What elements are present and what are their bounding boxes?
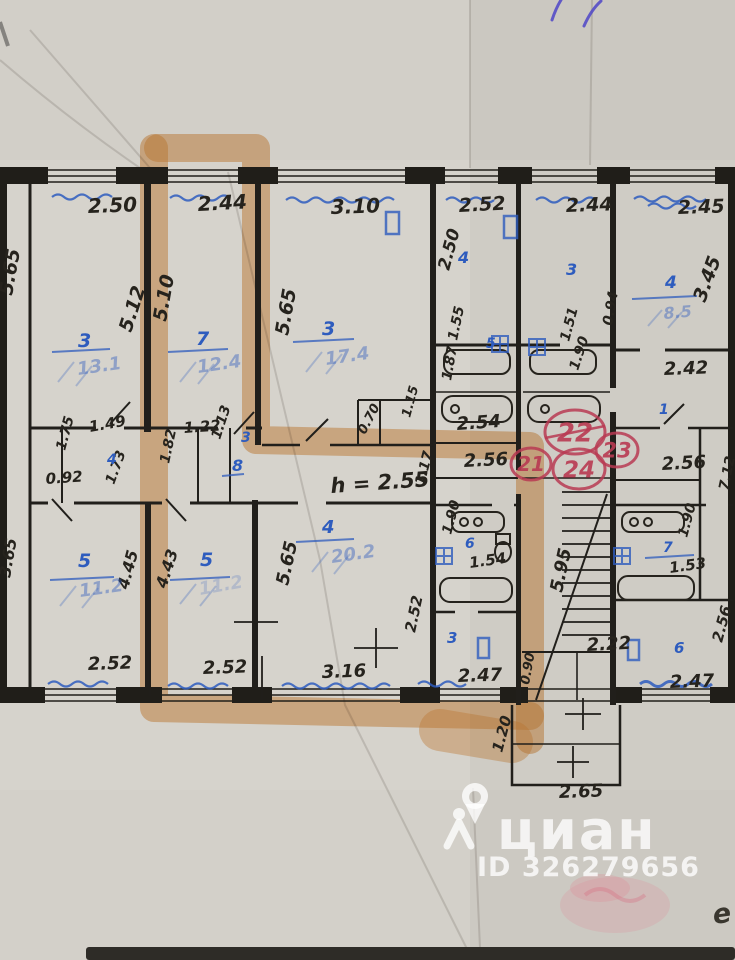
room-label-3: 3: [322, 318, 335, 340]
room-label-4: 4: [106, 452, 117, 468]
dimension-label-2.54: 2.54: [456, 411, 502, 435]
room-label-3: 3: [447, 629, 457, 647]
dimension-label-2.44: 2.44: [565, 193, 613, 217]
scanned-floor-plan-page: 2.502.443.102.522.442.455.655.125.105.65…: [0, 0, 735, 960]
dimension-label-2.42: 2.42: [663, 357, 708, 380]
room-label-6: 6: [674, 639, 684, 657]
svg-text:23: 23: [602, 439, 631, 463]
room-label-8.5: 8.5: [663, 302, 693, 323]
dimension-label-2.56: 2.56: [661, 452, 706, 475]
dimension-label-0.92: 0.92: [45, 467, 83, 488]
room-label-8: 8: [232, 456, 243, 475]
floor-plan-svg: 2.502.443.102.522.442.455.655.125.105.65…: [0, 0, 735, 960]
dimension-label-2.56: 2.56: [463, 449, 508, 472]
dimension-label-3.10: 3.10: [330, 193, 380, 219]
dimension-label-2.50: 2.50: [87, 192, 137, 218]
scan-edge-bar: [86, 947, 735, 960]
watermark-id: ID 326279656: [477, 852, 700, 883]
room-label-3: 3: [241, 430, 251, 446]
room-label-5: 5: [200, 549, 213, 571]
room-label-3: 3: [78, 330, 91, 352]
dimension-label-2.44: 2.44: [197, 189, 248, 216]
dimension-label-2.22: 2.22: [586, 633, 631, 656]
dimension-label-2.47: 2.47: [669, 670, 715, 693]
dimension-label-2.52: 2.52: [202, 656, 247, 679]
svg-text:24: 24: [563, 457, 595, 483]
room-label-7: 7: [663, 540, 673, 556]
room-label-5: 5: [486, 336, 496, 352]
dimension-label-2.52: 2.52: [87, 652, 132, 675]
room-label-5: 5: [78, 550, 91, 572]
dimension-label-2.45: 2.45: [677, 195, 725, 219]
room-label-1: 1: [659, 402, 669, 418]
room-label-4: 4: [321, 517, 335, 538]
svg-text:21: 21: [517, 452, 545, 476]
room-label-4: 4: [664, 273, 677, 293]
room-label-4: 4: [457, 248, 469, 267]
room-label-6: 6: [465, 536, 475, 552]
room-label-7: 7: [196, 328, 210, 350]
dimension-label-2.52: 2.52: [458, 193, 506, 217]
dimension-label-3.16: 3.16: [321, 660, 366, 683]
room-label-3: 3: [566, 260, 577, 279]
dimension-label-2.47: 2.47: [457, 664, 503, 687]
